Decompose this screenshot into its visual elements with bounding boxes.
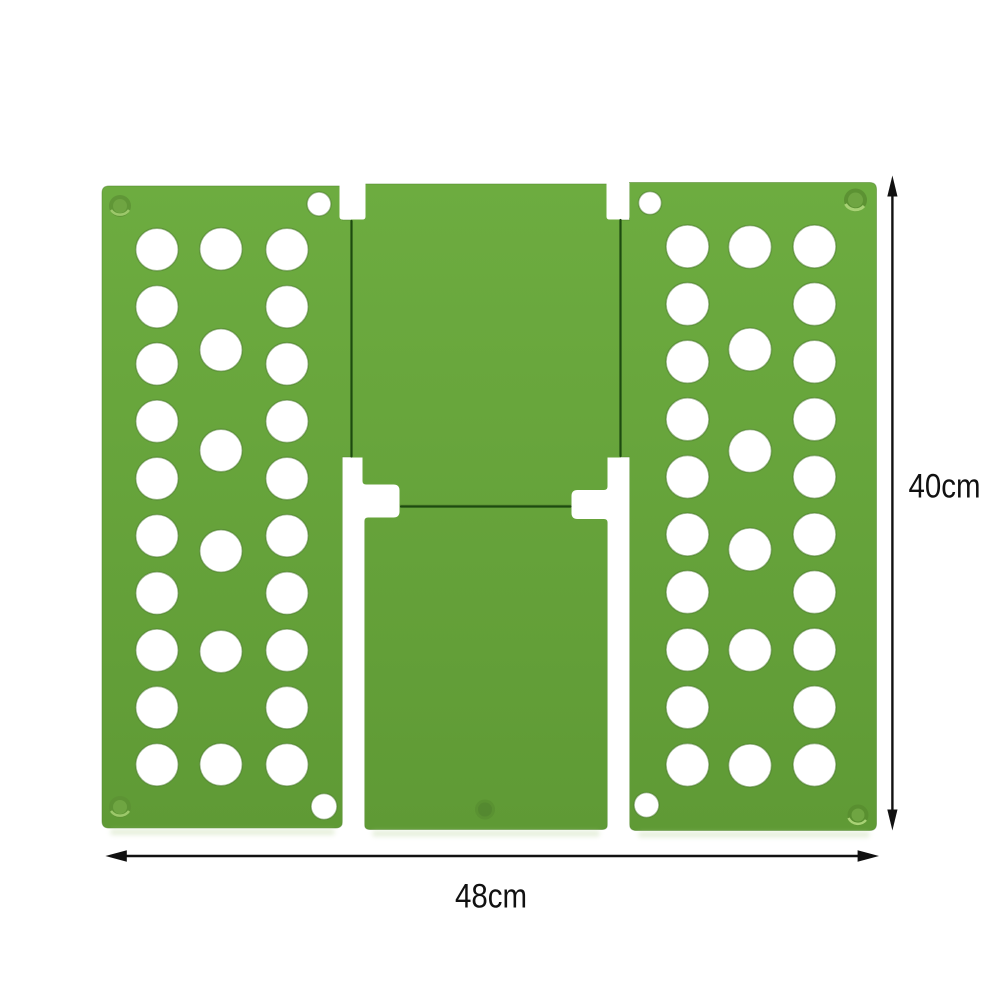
svg-text:40cm: 40cm (909, 468, 981, 506)
svg-text:48cm: 48cm (455, 878, 527, 916)
